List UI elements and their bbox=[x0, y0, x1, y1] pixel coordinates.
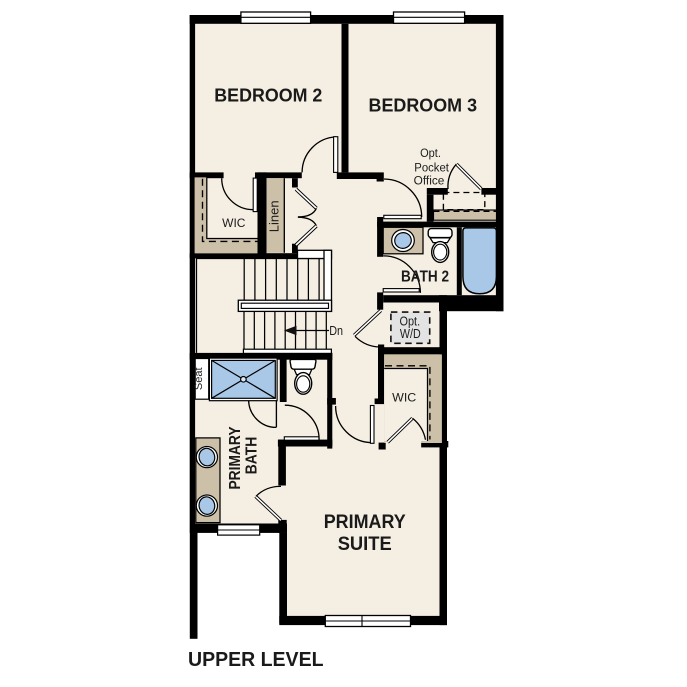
svg-text:WIC: WIC bbox=[392, 391, 416, 405]
svg-text:Pocket: Pocket bbox=[414, 162, 449, 174]
svg-text:Seat: Seat bbox=[193, 367, 205, 390]
svg-text:W/D: W/D bbox=[400, 327, 421, 341]
svg-text:WIC: WIC bbox=[222, 216, 246, 230]
svg-text:UPPER LEVEL: UPPER LEVEL bbox=[188, 649, 324, 671]
svg-text:PRIMARY: PRIMARY bbox=[324, 512, 406, 533]
svg-text:Office: Office bbox=[414, 176, 445, 188]
svg-text:Dn: Dn bbox=[329, 324, 343, 338]
svg-text:Linen: Linen bbox=[266, 200, 281, 232]
svg-text:BATH 2: BATH 2 bbox=[401, 269, 449, 286]
svg-text:PRIMARY: PRIMARY bbox=[227, 426, 244, 489]
svg-text:BEDROOM 3: BEDROOM 3 bbox=[369, 95, 478, 116]
svg-text:SUITE: SUITE bbox=[338, 534, 392, 555]
svg-text:BEDROOM 2: BEDROOM 2 bbox=[214, 85, 322, 106]
svg-text:Opt.: Opt. bbox=[420, 148, 441, 160]
svg-text:BATH: BATH bbox=[244, 437, 261, 475]
